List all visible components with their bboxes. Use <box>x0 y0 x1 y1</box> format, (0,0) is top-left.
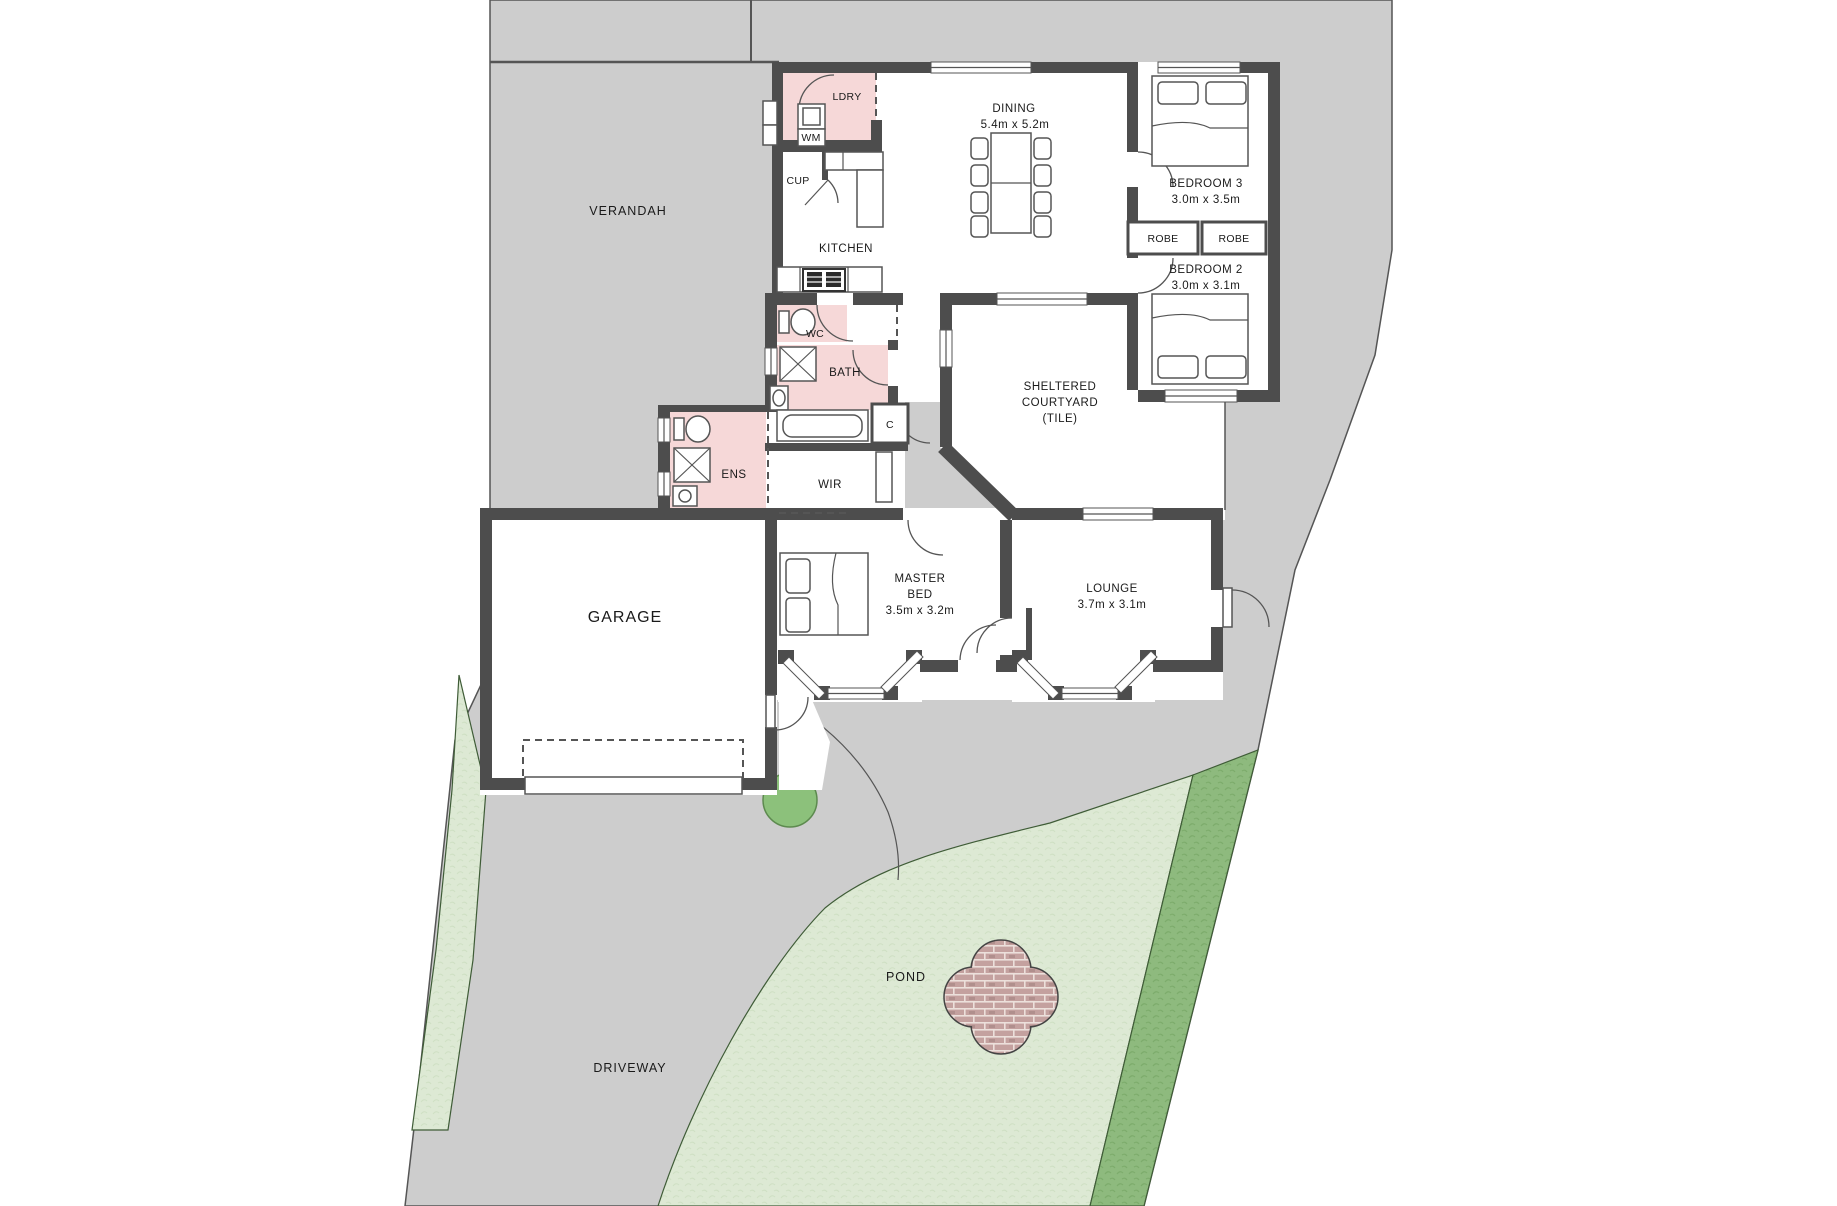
bath-basin-icon <box>770 386 788 410</box>
courtyard-south-window-icon <box>1083 508 1153 520</box>
lounge-dims: 3.7m x 3.1m <box>1078 599 1147 611</box>
ensuite-label: ENS <box>721 469 746 481</box>
bedroom3-label: BEDROOM 3 <box>1169 178 1243 190</box>
verandah-label: VERANDAH <box>589 204 666 218</box>
wm-label: WM <box>801 132 820 144</box>
ensuite-shower-icon <box>674 448 710 482</box>
cupboard-label: CUP <box>786 175 809 187</box>
courtyard-label-2: COURTYARD <box>1022 397 1098 409</box>
bedroom2-window-icon <box>1165 390 1237 402</box>
linen-label: C <box>886 419 894 431</box>
garage-door-icon <box>525 777 742 794</box>
laundry-trough-icon <box>763 101 777 145</box>
bed2-icon <box>1152 294 1248 384</box>
bedroom2-label: BEDROOM 2 <box>1169 264 1243 276</box>
dining-window-icon <box>931 62 1031 73</box>
ensuite-window2-icon <box>658 472 670 496</box>
courtyard-west-window-icon <box>940 330 952 367</box>
lounge-label: LOUNGE <box>1086 583 1138 595</box>
wir-shelf-icon <box>876 452 892 502</box>
courtyard-north-window-icon <box>997 293 1087 305</box>
floor-plan-svg: VERANDAH DRIVEWAY POND GARAGE LDRY WM CU… <box>0 0 1837 1206</box>
courtyard-label-3: (TILE) <box>1043 413 1078 425</box>
robe-left-label: ROBE <box>1148 233 1179 245</box>
master-label-2: BED <box>907 589 932 601</box>
driveway-label: DRIVEWAY <box>593 1061 666 1075</box>
dining-table-icon <box>971 133 1051 237</box>
master-dims: 3.5m x 3.2m <box>886 605 955 617</box>
robe-right-label: ROBE <box>1219 233 1250 245</box>
courtyard-label-1: SHELTERED <box>1024 381 1097 393</box>
wir-label: WIR <box>818 479 842 491</box>
bedroom2-dims: 3.0m x 3.1m <box>1172 280 1241 292</box>
dining-label: DINING <box>992 103 1035 115</box>
master-bed-icon <box>780 553 868 635</box>
bathtub-icon <box>777 410 868 441</box>
kitchen-label: KITCHEN <box>819 243 873 255</box>
bath-label: BATH <box>829 367 861 379</box>
bedroom3-window-icon <box>1158 62 1240 73</box>
ensuite-toilet-icon <box>674 416 710 442</box>
floor-plan-page: VERANDAH DRIVEWAY POND GARAGE LDRY WM CU… <box>0 0 1837 1206</box>
bed3-icon <box>1152 76 1248 166</box>
dining-dims: 5.4m x 5.2m <box>981 119 1050 131</box>
shower-icon <box>780 347 816 381</box>
stove-icon <box>803 269 845 291</box>
pond-label: POND <box>886 970 926 984</box>
laundry-label: LDRY <box>832 91 861 103</box>
bedroom3-dims: 3.0m x 3.5m <box>1172 194 1241 206</box>
wc-label: WC <box>806 328 824 340</box>
bath-window-icon <box>765 348 777 375</box>
ensuite-basin-icon <box>673 486 697 506</box>
garage-label: GARAGE <box>588 609 662 626</box>
room-laundry <box>783 73 876 143</box>
master-label-1: MASTER <box>895 573 946 585</box>
ensuite-window-icon <box>658 418 670 442</box>
